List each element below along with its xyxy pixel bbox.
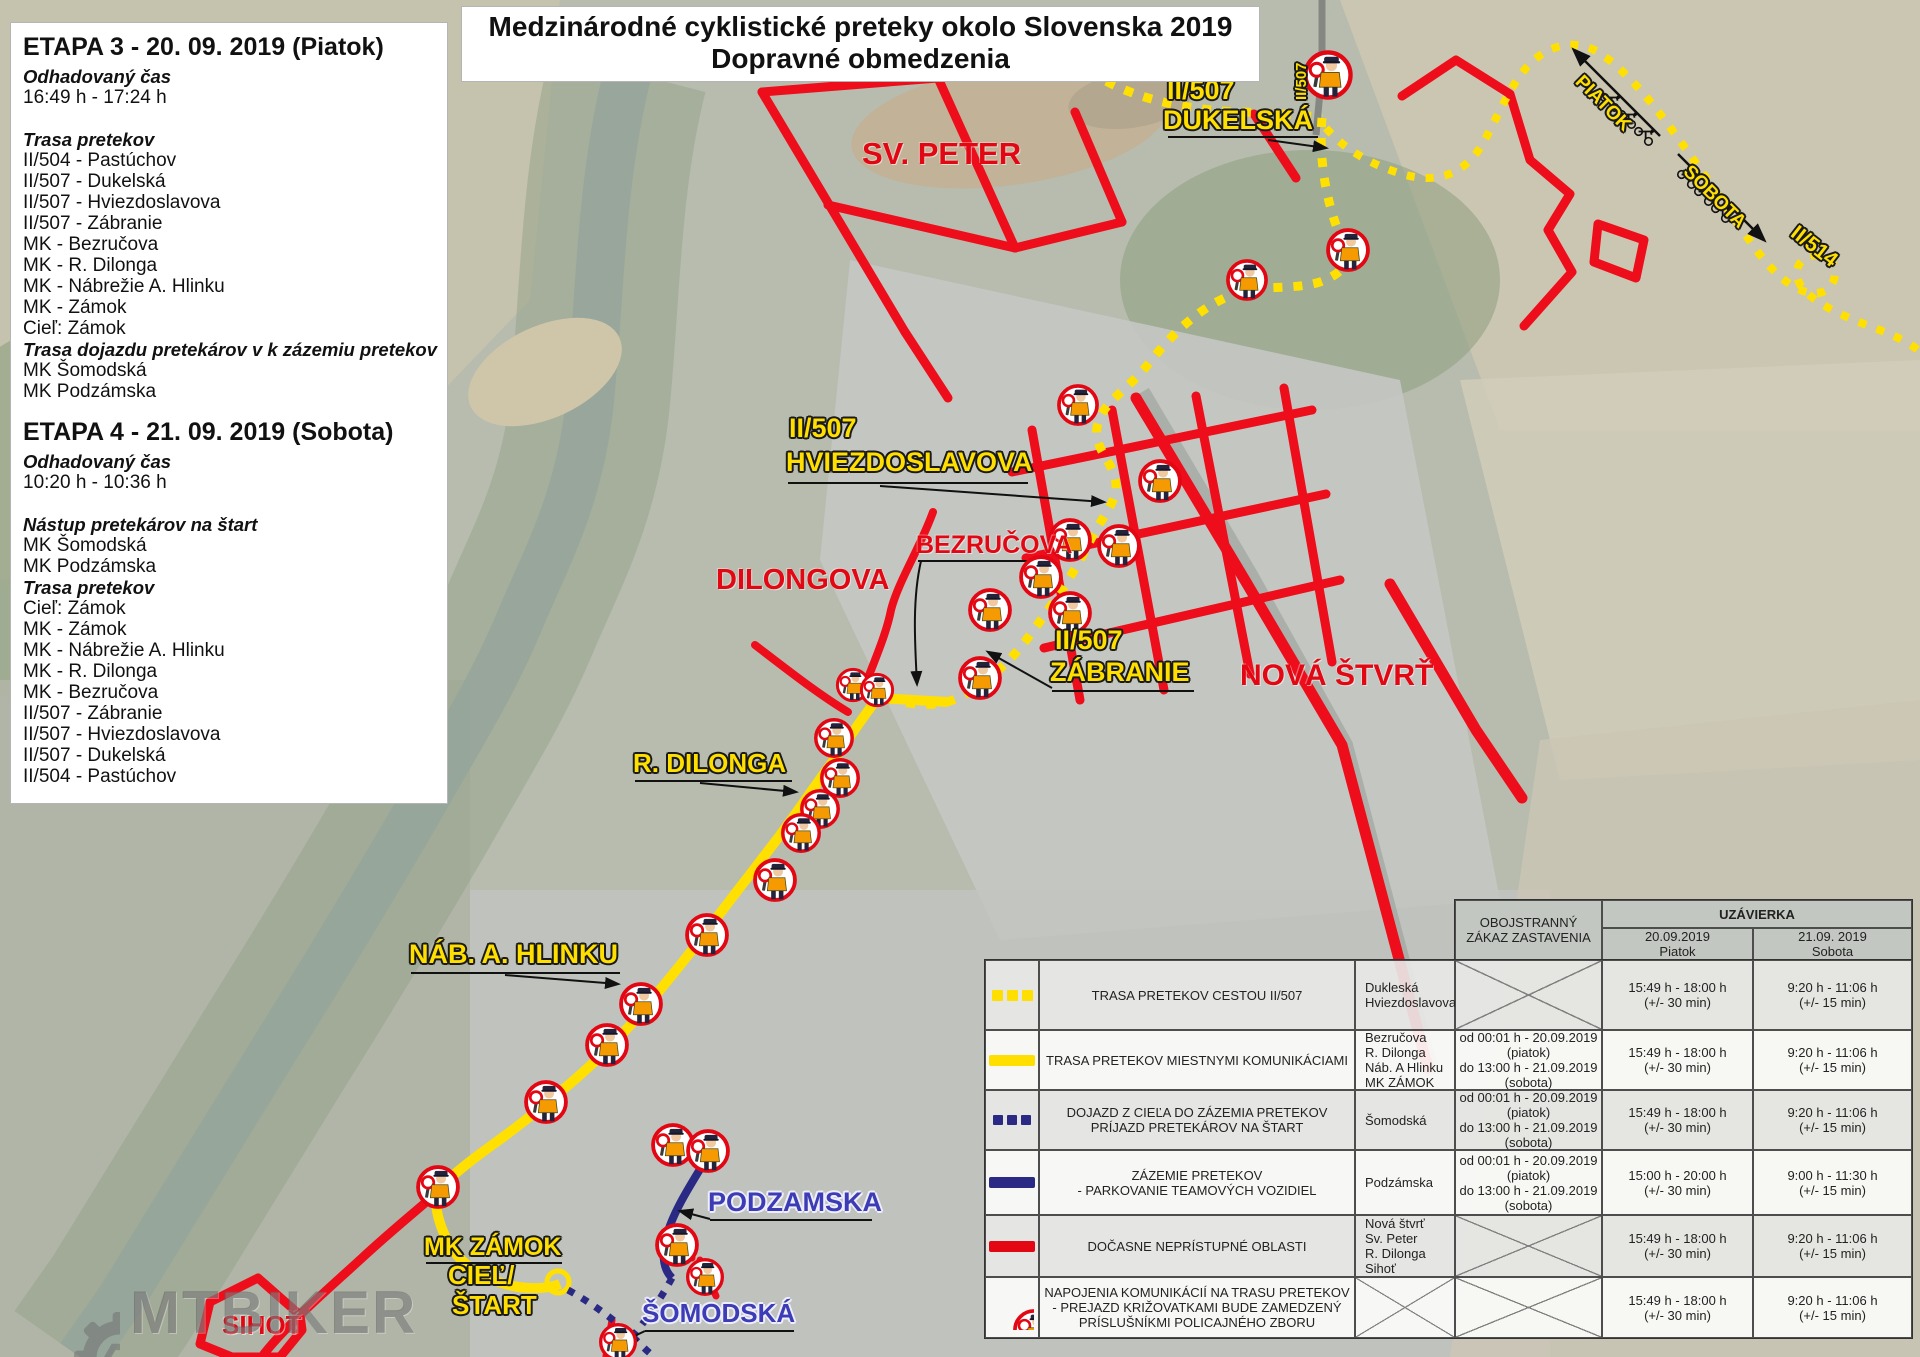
- legend-sobota-time: 9:20 h - 11:06 h (+/- 15 min): [1753, 960, 1912, 1030]
- legend-table-header: OBOJSTRANNÝ ZÁKAZ ZASTAVENIA UZÁVIERKA 2…: [1455, 900, 1912, 960]
- etapa4-line: II/507 - Zábranie: [23, 703, 443, 724]
- etapa4-line: Nástup pretekárov na štart: [23, 514, 443, 535]
- label-road-507-vertical: II/507: [1294, 62, 1310, 100]
- legend-sobota-time: 9:00 h - 11:30 h (+/- 15 min): [1753, 1150, 1912, 1215]
- etapa3-line: Odhadovaný čas: [23, 66, 443, 87]
- label-sv-peter: SV. PETER: [862, 138, 1021, 171]
- legend-streets: Bezručova R. Dilonga Náb. A Hlinku MK ZÁ…: [1355, 1030, 1455, 1090]
- mtbiker-watermark: MTBIKER: [28, 1266, 417, 1357]
- legend-desc: ZÁZEMIE PRETEKOV - PARKOVANIE TEAMOVÝCH …: [1039, 1150, 1355, 1215]
- label-nab-a-hlinku: NÁB. A. HLINKU: [409, 940, 618, 968]
- etapa4-line: 10:20 h - 10:36 h: [23, 472, 443, 493]
- legend-sobota-time: 9:20 h - 11:06 h (+/- 15 min): [1753, 1277, 1912, 1338]
- header-col-sobota: 21.09. 2019 Sobota: [1753, 928, 1912, 960]
- etapa3-line: 16:49 h - 17:24 h: [23, 87, 443, 108]
- label-hviezdoslavova-road: II/507: [789, 414, 857, 442]
- legend-streets: Šomodská: [1355, 1090, 1455, 1150]
- legend-piatok-time: 15:00 h - 20:00 h (+/- 30 min): [1602, 1150, 1753, 1215]
- legend-streets: [1355, 1277, 1455, 1338]
- etapa4-line: MK - Zámok: [23, 619, 443, 640]
- etapa4-line: Trasa pretekov: [23, 577, 443, 598]
- police-icon: [990, 1286, 1034, 1330]
- legend-table-body: TRASA PRETEKOV CESTOU II/507Dukleská Hvi…: [985, 960, 1912, 1338]
- etapa3-line: Trasa dojazdu pretekárov v k zázemiu pre…: [23, 339, 443, 360]
- etapa4-line: MK - R. Dilonga: [23, 661, 443, 682]
- header-col-piatok: 20.09.2019 Piatok: [1602, 928, 1753, 960]
- etapa4-line: II/507 - Hviezdoslavova: [23, 724, 443, 745]
- legend-zakaz: od 00:01 h - 20.09.2019 (piatok) do 13:0…: [1455, 1030, 1602, 1090]
- label-somodska: ŠOMODSKÁ: [642, 1300, 795, 1327]
- etapa3-line: II/504 - Pastúchov: [23, 150, 443, 171]
- legend-symbol-yellow-dotted: [985, 960, 1039, 1030]
- legend-symbol-police: [985, 1277, 1039, 1338]
- etapa4-line: [23, 493, 443, 514]
- label-zabranie: ZÁBRANIE: [1050, 658, 1190, 686]
- label-r-dilonga: R. DILONGA: [633, 750, 786, 777]
- etapa3-line: II/507 - Hviezdoslavova: [23, 192, 443, 213]
- etapa4-line: MK Podzámska: [23, 556, 443, 577]
- legend-zakaz: od 00:01 h - 20.09.2019 (piatok) do 13:0…: [1455, 1090, 1602, 1150]
- label-bezrucova: BEZRUČOVA: [916, 532, 1072, 558]
- etapa3-line: MK - Zámok: [23, 297, 443, 318]
- legend-streets: Nová štvrť Sv. Peter R. Dilonga Sihoť: [1355, 1215, 1455, 1277]
- etapa3-line: MK - Nábrežie A. Hlinku: [23, 276, 443, 297]
- map-title-line2: Dopravné obmedzenia: [462, 43, 1259, 75]
- legend-symbol-navy-dotted: [985, 1090, 1039, 1150]
- etapa3-line: [23, 108, 443, 129]
- legend-symbol-yellow-solid: [985, 1030, 1039, 1090]
- legend-piatok-time: 15:49 h - 18:00 h (+/- 30 min): [1602, 1090, 1753, 1150]
- etapa4-line: II/507 - Dukelská: [23, 745, 443, 766]
- etapa4-line: MK - Nábrežie A. Hlinku: [23, 640, 443, 661]
- label-ciel-line2: ŠTART: [452, 1292, 537, 1319]
- etapa3-line: Trasa pretekov: [23, 129, 443, 150]
- etapa3-line: MK Šomodská: [23, 360, 443, 381]
- etapa3-line: II/507 - Zábranie: [23, 213, 443, 234]
- legend-piatok-time: 15:49 h - 18:00 h (+/- 30 min): [1602, 960, 1753, 1030]
- legend-sobota-time: 9:20 h - 11:06 h (+/- 15 min): [1753, 1215, 1912, 1277]
- legend-desc: TRASA PRETEKOV CESTOU II/507: [1039, 960, 1355, 1030]
- label-zabranie-road: II/507: [1055, 626, 1123, 654]
- etapa4-line: Odhadovaný čas: [23, 451, 443, 472]
- etapa4-line: Cieľ: Zámok: [23, 598, 443, 619]
- legend-piatok-time: 15:49 h - 18:00 h (+/- 30 min): [1602, 1277, 1753, 1338]
- etapa3-line: MK Podzámska: [23, 381, 443, 402]
- legend-zakaz: od 00:01 h - 20.09.2019 (piatok) do 13:0…: [1455, 1150, 1602, 1215]
- legend-desc: NAPOJENIA KOMUNIKÁCIÍ NA TRASU PRETEKOV …: [1039, 1277, 1355, 1338]
- traffic-restrictions-map: SV. PETER II/507 DUKELSKÁ II/507 PIATOK …: [0, 0, 1920, 1357]
- etapa4-block: ETAPA 4 - 21. 09. 2019 (Sobota) Odhadova…: [23, 418, 443, 787]
- legend-desc: DOJAZD Z CIEĽA DO ZÁZEMIA PRETEKOV PRÍJA…: [1039, 1090, 1355, 1150]
- legend-symbol-red-solid: [985, 1215, 1039, 1277]
- legend-zakaz: [1455, 1277, 1602, 1338]
- header-obojstranny-zakaz: OBOJSTRANNÝ ZÁKAZ ZASTAVENIA: [1455, 900, 1602, 960]
- legend-zakaz: [1455, 1215, 1602, 1277]
- etapa3-line: MK - R. Dilonga: [23, 255, 443, 276]
- etapa4-line: MK - Bezručova: [23, 682, 443, 703]
- header-uzavierka: UZÁVIERKA: [1602, 900, 1912, 928]
- label-mk-zamok: MK ZÁMOK: [424, 1234, 561, 1260]
- legend-sobota-time: 9:20 h - 11:06 h (+/- 15 min): [1753, 1090, 1912, 1150]
- etapa3-line: Cieľ: Zámok: [23, 318, 443, 339]
- legend-desc: DOČASNE NEPRÍSTUPNÉ OBLASTI: [1039, 1215, 1355, 1277]
- etapa3-line: MK - Bezručova: [23, 234, 443, 255]
- legend-zakaz: [1455, 960, 1602, 1030]
- etapa3-block: ETAPA 3 - 20. 09. 2019 (Piatok) Odhadova…: [23, 33, 443, 402]
- etapa4-heading: ETAPA 4 - 21. 09. 2019 (Sobota): [23, 418, 443, 447]
- label-nova-stvrt: NOVÁ ŠTVRŤ: [1240, 660, 1433, 692]
- etapa3-heading: ETAPA 3 - 20. 09. 2019 (Piatok): [23, 33, 443, 62]
- label-hviezdoslavova: HVIEZDOSLAVOVA: [786, 448, 1033, 476]
- legend-symbol-navy-solid: [985, 1150, 1039, 1215]
- label-ciel-line1: CIEĽ/: [448, 1262, 514, 1289]
- etapa3-line: II/507 - Dukelská: [23, 171, 443, 192]
- legend-streets: Podzámska: [1355, 1150, 1455, 1215]
- legend-streets: Dukleská Hviezdoslavova: [1355, 960, 1455, 1030]
- label-dilongova: DILONGOVA: [716, 565, 889, 595]
- label-podzamska: PODZAMSKA: [708, 1188, 882, 1216]
- stage-info-panel: ETAPA 3 - 20. 09. 2019 (Piatok) Odhadova…: [10, 22, 448, 804]
- etapa4-line: MK Šomodská: [23, 535, 443, 556]
- map-title-box: Medzinárodné cyklistické preteky okolo S…: [461, 6, 1260, 82]
- legend-piatok-time: 15:49 h - 18:00 h (+/- 30 min): [1602, 1030, 1753, 1090]
- legend-sobota-time: 9:20 h - 11:06 h (+/- 15 min): [1753, 1030, 1912, 1090]
- label-dukelska: DUKELSKÁ: [1163, 106, 1313, 134]
- etapa4-line: II/504 - Pastúchov: [23, 766, 443, 787]
- gear-icon: [28, 1266, 120, 1357]
- legend-desc: TRASA PRETEKOV MIESTNYMI KOMUNIKÁCIAMI: [1039, 1030, 1355, 1090]
- watermark-text: MTBIKER: [130, 1278, 417, 1347]
- map-title-line1: Medzinárodné cyklistické preteky okolo S…: [462, 11, 1259, 43]
- legend-piatok-time: 15:49 h - 18:00 h (+/- 30 min): [1602, 1215, 1753, 1277]
